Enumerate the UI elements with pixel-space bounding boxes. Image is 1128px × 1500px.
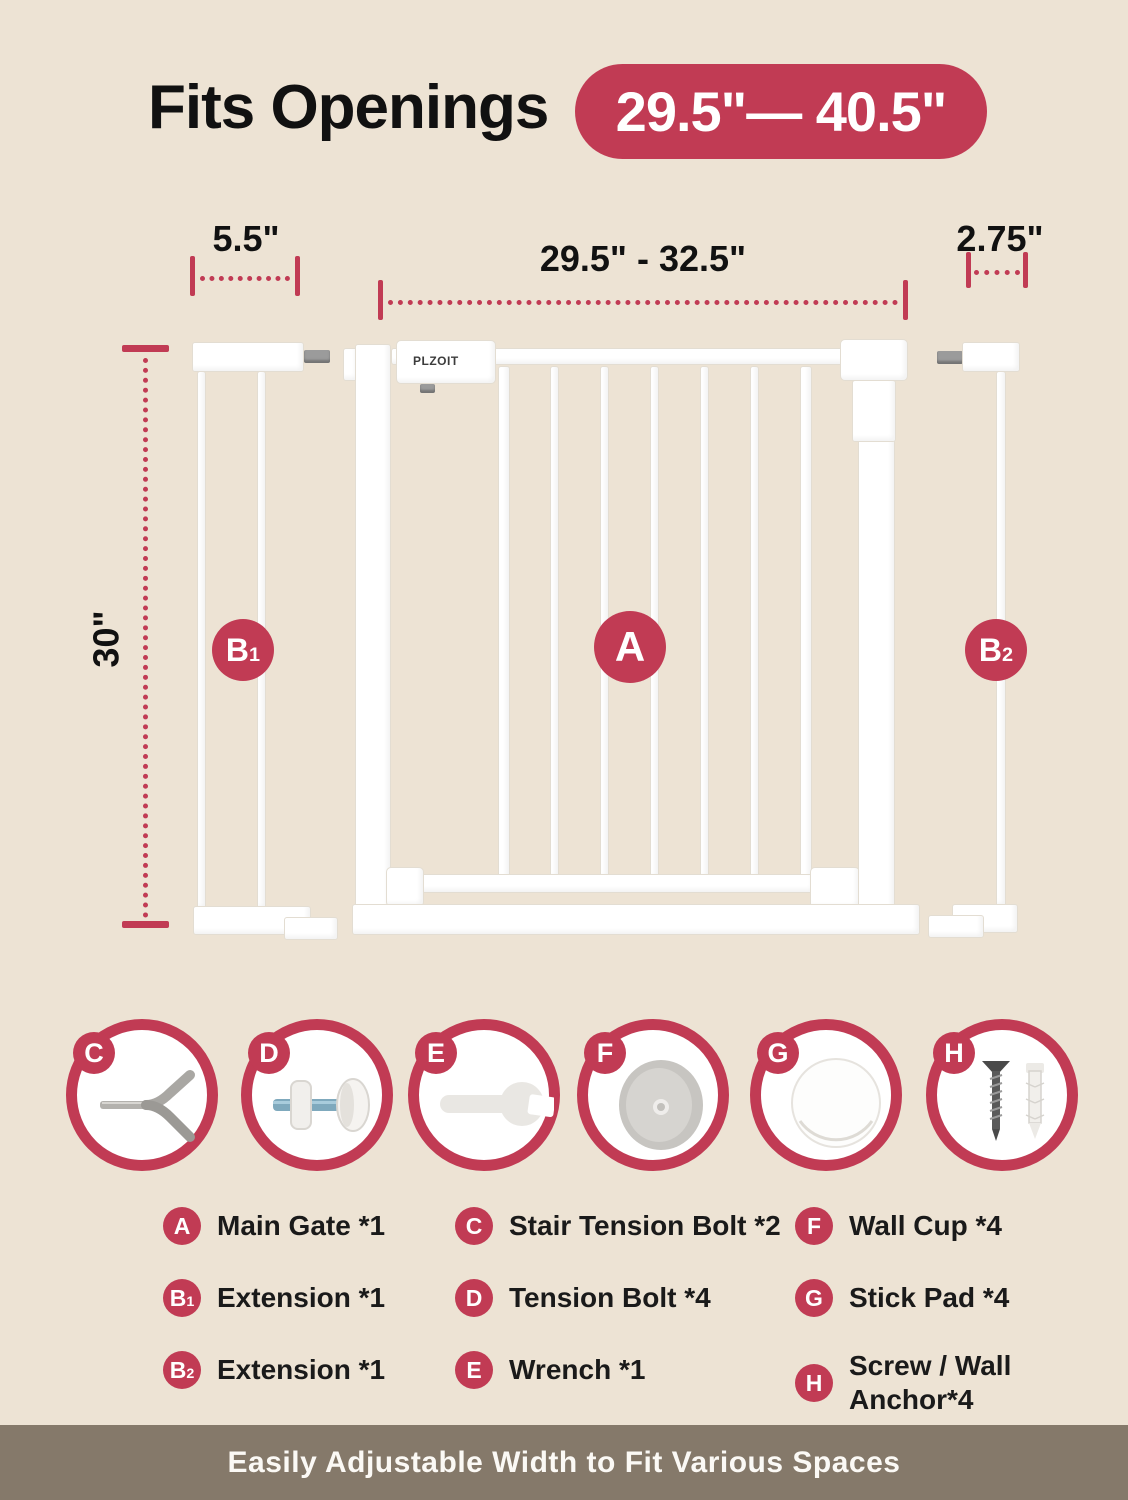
parts-list-item: H Screw / Wall Anchor*4 — [795, 1349, 1011, 1417]
badge-letter: C — [466, 1213, 483, 1240]
part-label: Wall Cup *4 — [849, 1209, 1002, 1243]
b2-label-letter: B — [979, 632, 1002, 669]
parts-list-item: B2 Extension *1 — [163, 1349, 385, 1391]
part-circle-badge: H — [933, 1032, 975, 1074]
part-label: Screw / Wall Anchor*4 — [849, 1349, 1011, 1417]
badge-letter: E — [466, 1357, 481, 1384]
part-badge-a: A — [163, 1207, 201, 1245]
b1-extension-foot — [284, 917, 338, 940]
b2-extension-screw-pin — [937, 351, 963, 364]
part-badge-d: D — [455, 1279, 493, 1317]
part-circle-badge: C — [73, 1032, 115, 1074]
dimension-dotted-line — [200, 276, 290, 281]
parts-list-item: F Wall Cup *4 — [795, 1205, 1011, 1247]
b1-extension-label: B1 — [212, 619, 274, 681]
part-circle-stair-tension-bolt: C — [66, 1019, 218, 1171]
part-circle-stick-pad: G — [750, 1019, 902, 1171]
part-letter: G — [767, 1038, 788, 1069]
part-circle-wall-cup: F — [577, 1019, 729, 1171]
part-label: Tension Bolt *4 — [509, 1281, 711, 1315]
parts-list-item: E Wrench *1 — [455, 1349, 781, 1391]
latch-button — [420, 384, 435, 393]
page-title: Fits Openings — [148, 72, 548, 143]
b1-extension-bar — [197, 371, 206, 910]
part-label: Extension *1 — [217, 1281, 385, 1315]
part-label: Stick Pad *4 — [849, 1281, 1009, 1315]
gate-height-dimension-label: 30" — [86, 610, 128, 667]
part-label: Extension *1 — [217, 1353, 385, 1387]
dimension-dotted-line — [974, 270, 1020, 275]
part-letter: D — [259, 1038, 279, 1069]
height-dimension-bottom-tick — [122, 921, 169, 928]
dimension-tick — [966, 252, 971, 288]
b1-label-letter: B — [226, 632, 249, 669]
part-letter: H — [944, 1038, 964, 1069]
left-extension-dimension-line — [190, 256, 300, 296]
badge-letter: H — [806, 1370, 823, 1397]
dimension-dotted-line — [388, 300, 898, 305]
main-gate-base — [352, 904, 920, 935]
gate-door-left-stile — [498, 366, 510, 882]
badge-letter: A — [174, 1213, 191, 1240]
gate-door-bottom-left-bracket — [386, 867, 424, 907]
badge-letter: B — [170, 1357, 187, 1384]
gate-width-dimension-line — [378, 280, 908, 320]
gate-door-right-stile — [800, 366, 812, 882]
b1-extension-top-cap — [192, 342, 304, 372]
b1-label-subscript: 1 — [249, 644, 260, 667]
height-dimension-top-tick — [122, 345, 169, 352]
part-badge-f: F — [795, 1207, 833, 1245]
part-circle-badge: E — [415, 1032, 457, 1074]
opening-range-badge: 29.5"— 40.5" — [575, 64, 987, 159]
footer-banner-text: Easily Adjustable Width to Fit Various S… — [228, 1446, 901, 1480]
main-gate-hinge-top — [840, 339, 908, 381]
parts-list-item: B1 Extension *1 — [163, 1277, 385, 1319]
a-label-letter: A — [615, 623, 645, 671]
badge-subscript: 2 — [186, 1366, 194, 1382]
parts-list-item: G Stick Pad *4 — [795, 1277, 1011, 1319]
part-label: Main Gate *1 — [217, 1209, 385, 1243]
badge-letter: B — [170, 1285, 187, 1312]
badge-letter: D — [466, 1285, 483, 1312]
part-badge-h: H — [795, 1364, 833, 1402]
main-gate-label: A — [594, 611, 666, 683]
part-letter: E — [427, 1038, 445, 1069]
dimension-tick — [1023, 252, 1028, 288]
part-circle-tension-bolt: D — [241, 1019, 393, 1171]
b2-extension-label: B2 — [965, 619, 1027, 681]
gate-door-bottom-right-bracket — [810, 867, 860, 909]
parts-list-item: C Stair Tension Bolt *2 — [455, 1205, 781, 1247]
gate-door-bar — [700, 366, 709, 880]
dimension-tick — [903, 280, 908, 320]
part-circle-badge: G — [757, 1032, 799, 1074]
part-badge-b1: B1 — [163, 1279, 201, 1317]
part-badge-c: C — [455, 1207, 493, 1245]
height-dimension-dotted-line — [143, 358, 148, 918]
gate-door-bar — [750, 366, 759, 880]
gate-width-dimension-label: 29.5" - 32.5" — [433, 238, 853, 280]
parts-list-column-2: C Stair Tension Bolt *2 D Tension Bolt *… — [455, 1205, 781, 1391]
part-circle-badge: D — [248, 1032, 290, 1074]
dimension-tick — [295, 256, 300, 296]
part-badge-e: E — [455, 1351, 493, 1389]
badge-subscript: 1 — [186, 1294, 194, 1310]
parts-list-column-3: F Wall Cup *4 G Stick Pad *4 H Screw / W… — [795, 1205, 1011, 1417]
dimension-tick — [190, 256, 195, 296]
part-letter: C — [84, 1038, 104, 1069]
part-circle-badge: F — [584, 1032, 626, 1074]
parts-list-item: D Tension Bolt *4 — [455, 1277, 781, 1319]
part-label: Wrench *1 — [509, 1353, 645, 1387]
brand-logo: PLZOIT — [413, 354, 459, 368]
b2-label-subscript: 2 — [1002, 644, 1013, 667]
left-extension-dimension-label: 5.5" — [186, 218, 306, 260]
part-badge-b2: B2 — [163, 1351, 201, 1389]
part-label: Stair Tension Bolt *2 — [509, 1209, 781, 1243]
b2-extension-top-cap — [962, 342, 1020, 372]
b2-extension-foot — [928, 915, 984, 938]
badge-letter: G — [805, 1285, 823, 1312]
part-circle-screw-wall-anchor: H — [926, 1019, 1078, 1171]
right-extension-dimension-line — [966, 252, 1028, 288]
dimension-tick — [378, 280, 383, 320]
part-circle-wrench: E — [408, 1019, 560, 1171]
part-badge-g: G — [795, 1279, 833, 1317]
badge-letter: F — [807, 1213, 821, 1240]
main-gate-hinge-lower — [852, 380, 896, 442]
gate-door-bottom-rail — [391, 874, 815, 893]
b1-extension-screw-pin — [304, 350, 330, 363]
part-letter: F — [597, 1038, 614, 1069]
gate-door-bar — [550, 366, 559, 880]
parts-list-item: A Main Gate *1 — [163, 1205, 385, 1247]
footer-banner: Easily Adjustable Width to Fit Various S… — [0, 1425, 1128, 1500]
parts-list-column-1: A Main Gate *1 B1 Extension *1 B2 Extens… — [163, 1205, 385, 1391]
main-gate-left-post — [355, 344, 391, 932]
